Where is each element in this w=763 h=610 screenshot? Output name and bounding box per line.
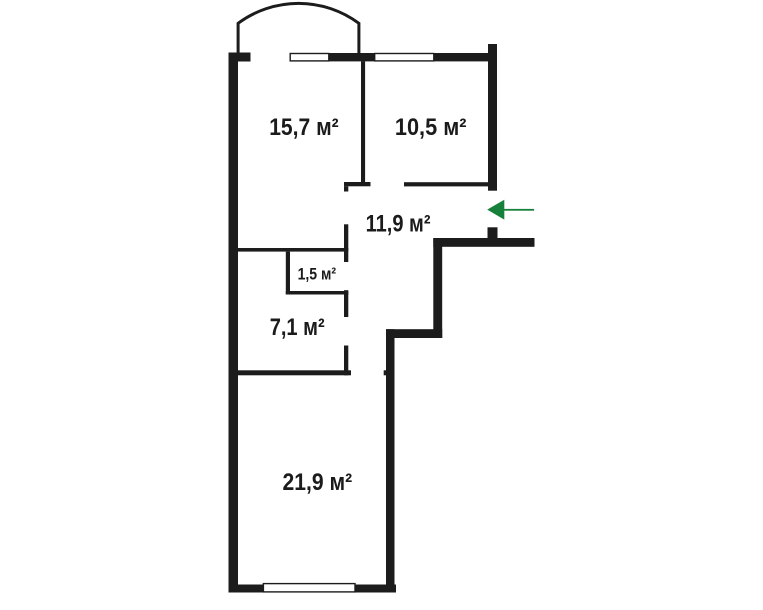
svg-text:1,5 м²: 1,5 м²	[298, 265, 337, 283]
svg-text:10,5 м²: 10,5 м²	[395, 114, 467, 141]
svg-text:21,9 м²: 21,9 м²	[283, 469, 353, 496]
svg-text:7,1 м²: 7,1 м²	[270, 314, 325, 341]
svg-text:11,9 м²: 11,9 м²	[366, 211, 431, 238]
svg-text:15,7 м²: 15,7 м²	[269, 114, 339, 141]
